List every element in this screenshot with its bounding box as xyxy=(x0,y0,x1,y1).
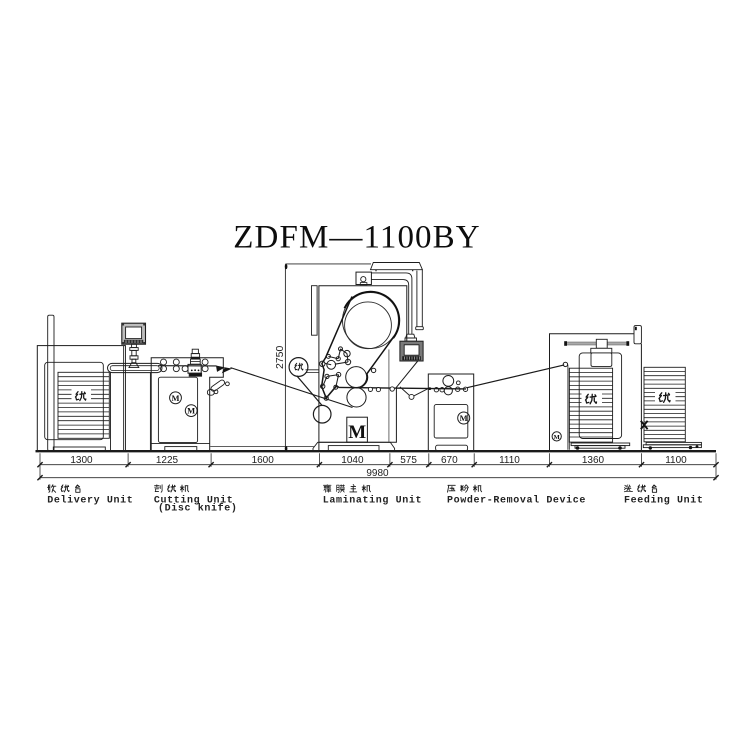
svg-text:M: M xyxy=(554,434,560,441)
svg-text:M: M xyxy=(348,422,366,443)
svg-text:1600: 1600 xyxy=(252,455,275,466)
svg-text:1110: 1110 xyxy=(499,455,520,466)
svg-text:Delivery Unit: Delivery Unit xyxy=(47,494,133,506)
svg-text:670: 670 xyxy=(441,455,458,466)
svg-text:M: M xyxy=(460,413,468,423)
svg-text:M: M xyxy=(187,406,195,416)
svg-text:Powder-Removal Device: Powder-Removal Device xyxy=(447,494,586,506)
svg-text:575: 575 xyxy=(400,455,417,466)
svg-text:2750: 2750 xyxy=(274,345,286,369)
svg-text:1225: 1225 xyxy=(156,455,179,466)
svg-text:1100: 1100 xyxy=(665,455,687,466)
svg-text:M: M xyxy=(171,393,179,403)
svg-text:(Disc knife): (Disc knife) xyxy=(158,502,237,514)
svg-text:ZDFM—1100BY: ZDFM—1100BY xyxy=(233,220,480,256)
svg-text:Laminating Unit: Laminating Unit xyxy=(323,494,422,506)
svg-text:9980: 9980 xyxy=(366,468,389,479)
svg-text:Feeding Unit: Feeding Unit xyxy=(624,494,703,506)
svg-text:1300: 1300 xyxy=(70,455,93,466)
svg-text:1360: 1360 xyxy=(582,455,605,466)
svg-text:1040: 1040 xyxy=(341,455,364,466)
